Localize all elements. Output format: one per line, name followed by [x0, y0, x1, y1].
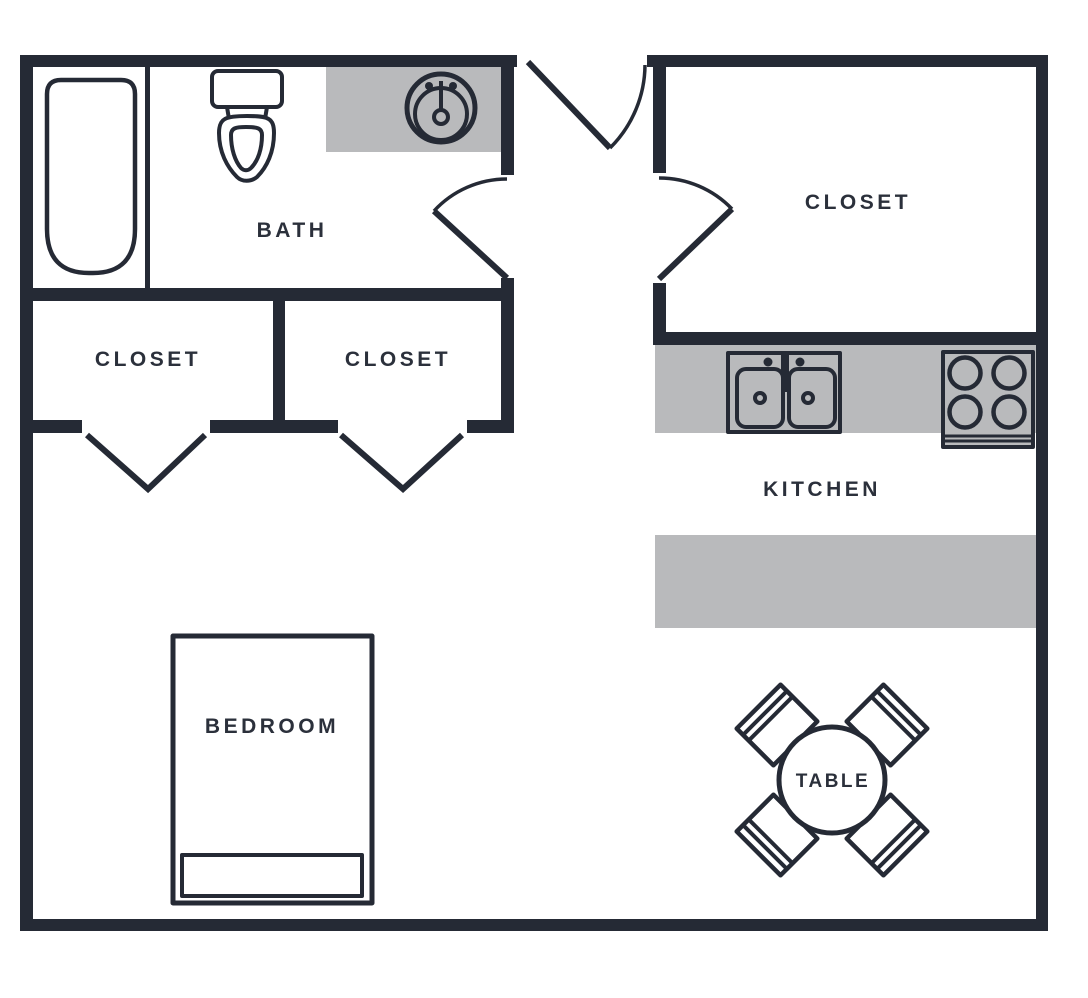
wall-top-left [20, 55, 517, 67]
wall-right [1036, 55, 1048, 931]
kitchen-sink-tap-right [796, 358, 805, 367]
folding-closet-door-left-icon [87, 435, 205, 489]
wall-top-right [647, 55, 1048, 67]
kitchen-sink-drain-right [803, 393, 813, 403]
kitchen-sink-divider [781, 353, 789, 392]
wall-closet-front-middle [210, 420, 338, 433]
bathtub-outline [47, 80, 135, 273]
bath-door-swing-icon [434, 179, 507, 278]
bed-icon [173, 636, 372, 903]
toilet-icon [212, 71, 282, 181]
wall-tub-partition [145, 67, 150, 288]
wall-trcloset-bottom [653, 332, 1036, 345]
entry-door-arc [610, 65, 645, 148]
floor-plan-canvas: BATH CLOSET CLOSET CLOSET KITCHEN BEDROO… [0, 0, 1088, 998]
bath-label: BATH [257, 219, 328, 242]
wall-trcloset-left-upper [653, 67, 666, 173]
sink-tap-left [425, 82, 433, 90]
trcloset-door-arc [659, 178, 732, 209]
pillow-icon [182, 855, 362, 896]
entry-door-leaf [528, 62, 610, 148]
trcloset-door-swing-icon [659, 178, 732, 279]
kitchen-label: KITCHEN [763, 478, 881, 501]
closet-left-label: CLOSET [95, 348, 201, 371]
stove-icon [943, 352, 1033, 447]
wall-left [20, 55, 33, 931]
bath-door-arc [434, 179, 507, 211]
wall-closet-front-left [33, 420, 82, 433]
sink-drain [434, 110, 448, 124]
wall-bottom [20, 919, 1048, 931]
bedroom-label: BEDROOM [205, 715, 339, 738]
floor-plan: BATH CLOSET CLOSET CLOSET KITCHEN BEDROO… [0, 0, 1088, 998]
trcloset-door-leaf [659, 209, 732, 279]
closet-top-right-label: CLOSET [805, 191, 911, 214]
kitchen-counter-bottom [655, 535, 1036, 628]
wall-mid-horizontal [20, 288, 514, 301]
kitchen-sink-tap-left [764, 358, 773, 367]
folding-closet-door-right-icon [341, 435, 462, 489]
closet-right-label: CLOSET [345, 348, 451, 371]
toilet-tank [212, 71, 282, 107]
entry-door-swing-icon [528, 62, 645, 148]
kitchen-sink-drain-left [755, 393, 765, 403]
wall-closet-divider [273, 301, 285, 433]
bath-door-leaf [434, 211, 507, 278]
table-label: TABLE [796, 771, 870, 792]
wall-closet-front-right [467, 420, 501, 433]
wall-bath-right-upper [501, 67, 514, 175]
sink-tap-right [449, 82, 457, 90]
wall-bath-right-lower [501, 278, 514, 433]
bathtub-icon [47, 80, 135, 273]
